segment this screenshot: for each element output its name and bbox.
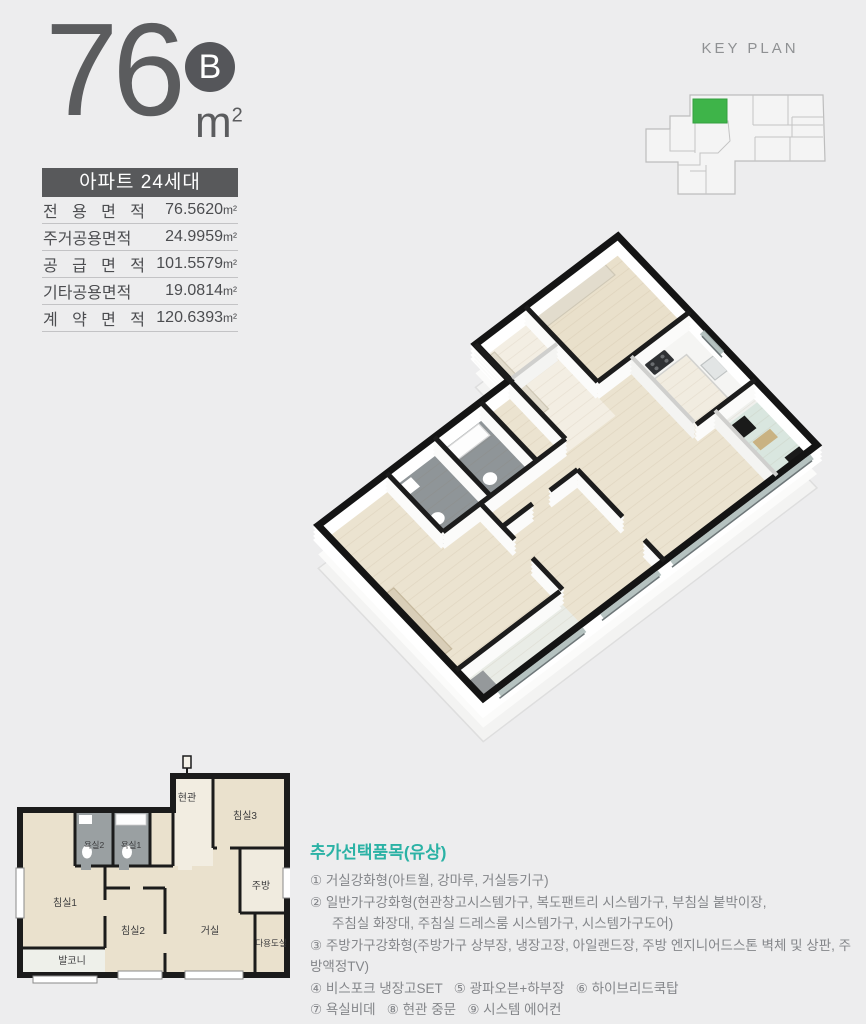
room-label-living: 거실 (201, 925, 219, 937)
room-label-utility: 다용도실 (255, 938, 286, 948)
room-label-bath1: 욕실1 (121, 840, 142, 850)
optional-item: ② 일반가구강화형(현관창고시스템가구, 복도팬트리 시스템가구, 부침실 붙박… (310, 892, 858, 914)
room-label-bedroom3: 침실3 (233, 810, 257, 822)
floorplan-brochure-page: { "unit_header": { "area_number": "76", … (0, 0, 866, 1024)
optional-item: ③ 주방가구강화형(주방가구 상부장, 냉장고장, 아일랜드장, 주방 엔지니어… (310, 935, 858, 978)
optional-items-section: 추가선택품목(유상) ① 거실강화형(아트월, 강마루, 거실등기구) ② 일반… (310, 838, 858, 1021)
room-label-bath2: 욕실2 (84, 840, 105, 850)
room-label-entrance: 현관 (178, 792, 196, 804)
floorplan-2d: 현관 침실3 욕실2 욕실1 주방 침실1 침실2 거실 다용도실 발코니 (15, 748, 290, 1000)
optional-item: ① 거실강화형(아트월, 강마루, 거실등기구) (310, 870, 858, 892)
optional-item-continuation: 주침실 화장대, 주침실 드레스룸 시스템가구, 시스템가구도어) (310, 913, 858, 935)
room-label-bedroom1: 침실1 (53, 897, 77, 909)
optional-items-title: 추가선택품목(유상) (310, 838, 858, 863)
room-label-balcony: 발코니 (58, 955, 86, 967)
optional-item: ④ 비스포크 냉장고SET ⑤ 광파오븐+하부장 ⑥ 하이브리드쿡탑 (310, 978, 858, 1000)
room-label-kitchen: 주방 (252, 880, 270, 892)
room-label-bedroom2: 침실2 (121, 925, 145, 937)
optional-item: ⑦ 욕실비데 ⑧ 현관 중문 ⑨ 시스템 에어컨 (310, 999, 858, 1021)
